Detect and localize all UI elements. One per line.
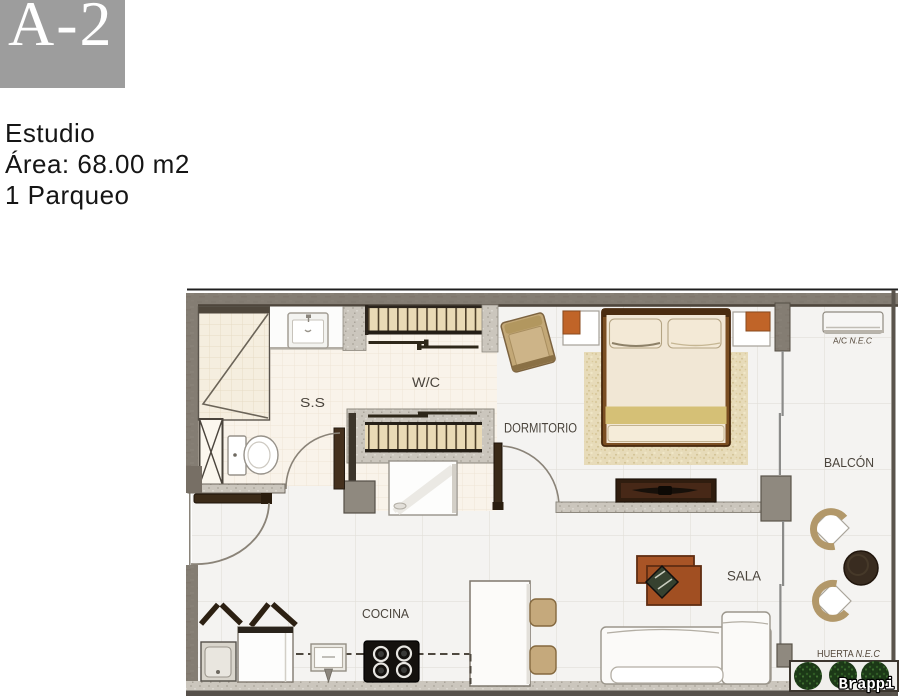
svg-text:COCINA: COCINA xyxy=(362,606,409,621)
svg-text:SALA: SALA xyxy=(727,568,762,584)
svg-text:DORMITORIO: DORMITORIO xyxy=(504,421,577,436)
svg-text:S.S: S.S xyxy=(300,396,325,410)
svg-text:Brappi: Brappi xyxy=(839,676,895,694)
svg-text:W/C: W/C xyxy=(412,375,440,390)
svg-text:HUERTA N.E.C: HUERTA N.E.C xyxy=(817,649,881,660)
svg-text:A/C N.E.C: A/C N.E.C xyxy=(833,336,873,346)
svg-text:BALCÓN: BALCÓN xyxy=(824,455,874,470)
